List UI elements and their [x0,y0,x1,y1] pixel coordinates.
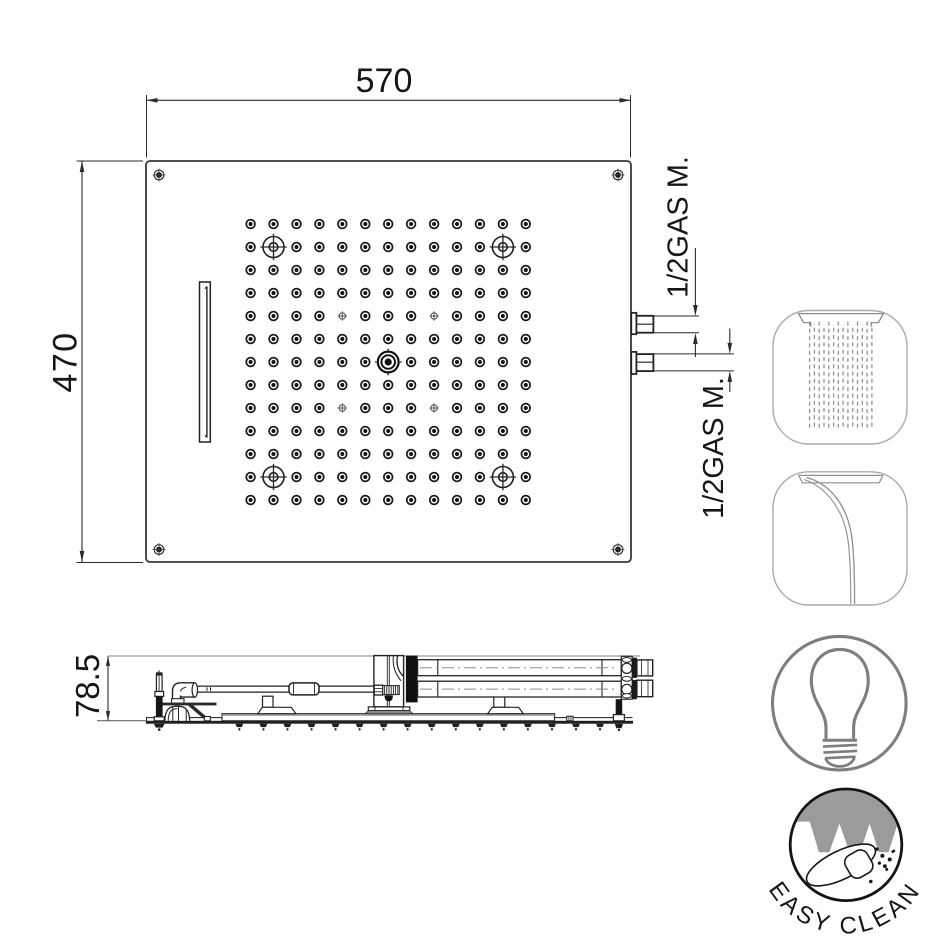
svg-text:1/2GAS M.: 1/2GAS M. [663,156,695,298]
svg-text:570: 570 [356,62,413,100]
svg-text:78.5: 78.5 [69,654,106,718]
svg-text:1/2GAS M.: 1/2GAS M. [698,377,730,519]
svg-text:470: 470 [47,332,85,393]
